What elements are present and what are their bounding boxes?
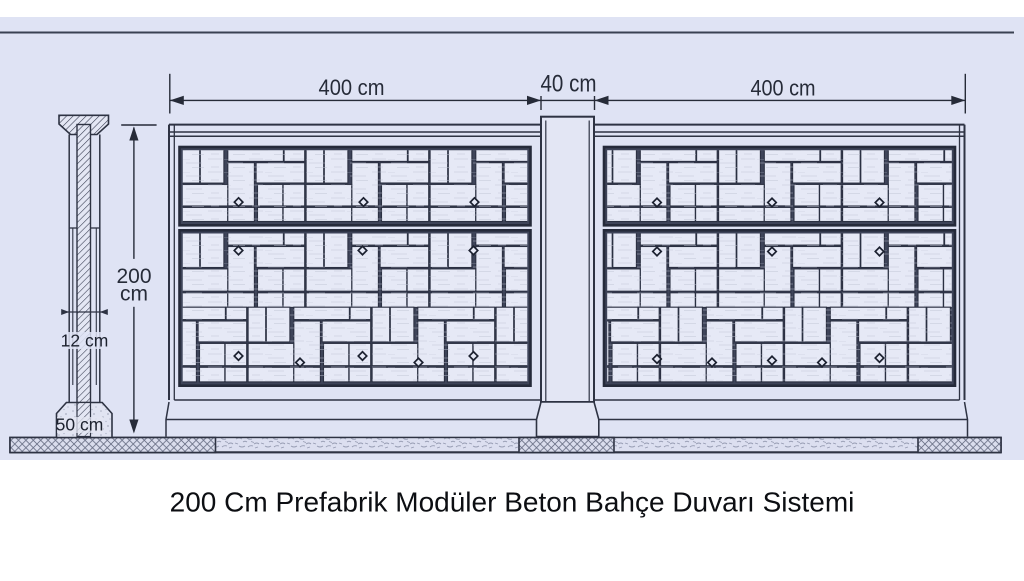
svg-text:400 cm: 400 cm [751,76,816,101]
svg-text:50 cm: 50 cm [56,414,104,434]
svg-text:40 cm: 40 cm [541,71,597,98]
svg-text:200 Cm Prefabrik Modüler Beton: 200 Cm Prefabrik Modüler Beton Bahçe Duv… [170,487,855,518]
svg-text:400 cm: 400 cm [319,75,385,100]
svg-text:12 cm: 12 cm [61,331,109,351]
svg-text:cm: cm [120,282,148,305]
